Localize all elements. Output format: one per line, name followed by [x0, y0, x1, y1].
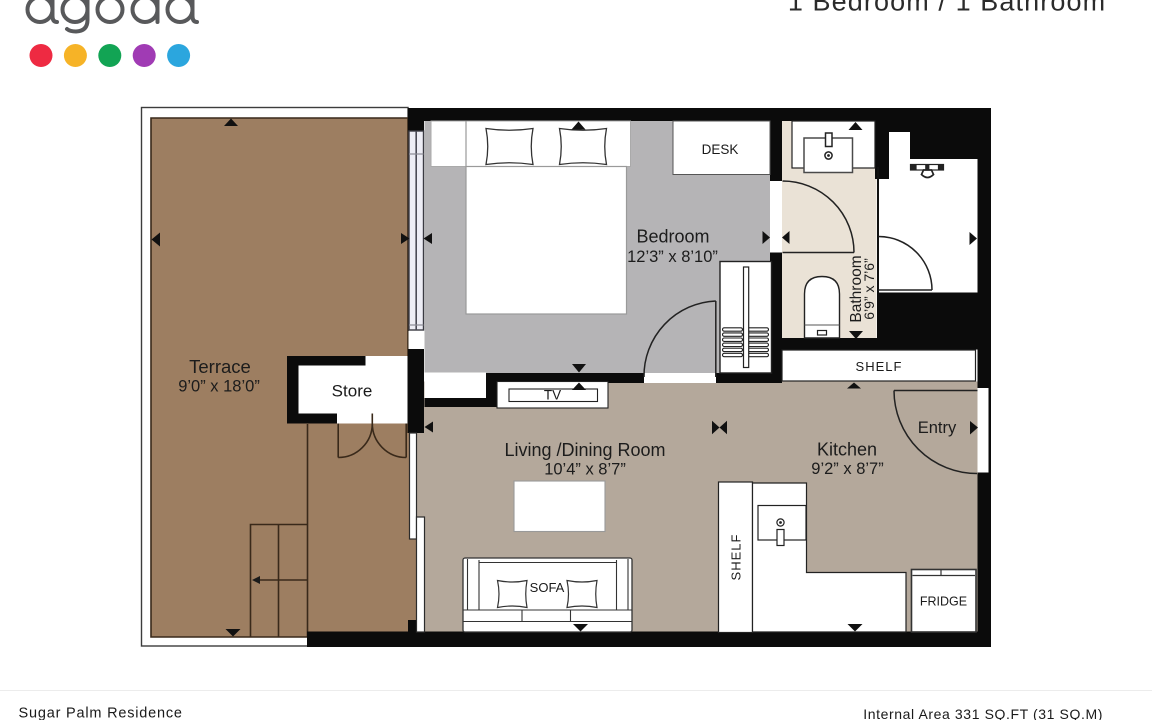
svg-text:Living /Dining Room: Living /Dining Room	[504, 440, 665, 460]
svg-text:Bedroom: Bedroom	[636, 227, 709, 247]
svg-text:Kitchen: Kitchen	[817, 440, 877, 460]
svg-text:SOFA: SOFA	[530, 580, 565, 595]
svg-text:1 Bedroom / 1 Bathroom: 1 Bedroom / 1 Bathroom	[788, 0, 1106, 17]
svg-text:SHELF: SHELF	[856, 359, 903, 374]
svg-text:Sugar Palm Residence: Sugar Palm Residence	[19, 706, 183, 720]
svg-text:12’3” x 8’10”: 12’3” x 8’10”	[627, 248, 718, 266]
svg-text:10’4” x 8’7”: 10’4” x 8’7”	[544, 461, 626, 479]
svg-text:Internal Area 331 SQ.FT (31 SQ: Internal Area 331 SQ.FT (31 SQ.M)	[863, 706, 1103, 720]
svg-text:6’9” x 7’6”: 6’9” x 7’6”	[861, 258, 877, 320]
svg-text:Store: Store	[332, 382, 373, 401]
svg-text:Terrace: Terrace	[189, 356, 251, 377]
svg-text:9’2” x 8’7”: 9’2” x 8’7”	[811, 460, 883, 478]
svg-text:DESK: DESK	[702, 142, 739, 157]
svg-text:FRIDGE: FRIDGE	[920, 595, 967, 609]
svg-text:9’0” x 18’0”: 9’0” x 18’0”	[178, 378, 260, 396]
svg-text:TV: TV	[544, 388, 561, 403]
svg-text:Entry: Entry	[918, 419, 957, 437]
svg-text:SHELF: SHELF	[729, 534, 744, 581]
